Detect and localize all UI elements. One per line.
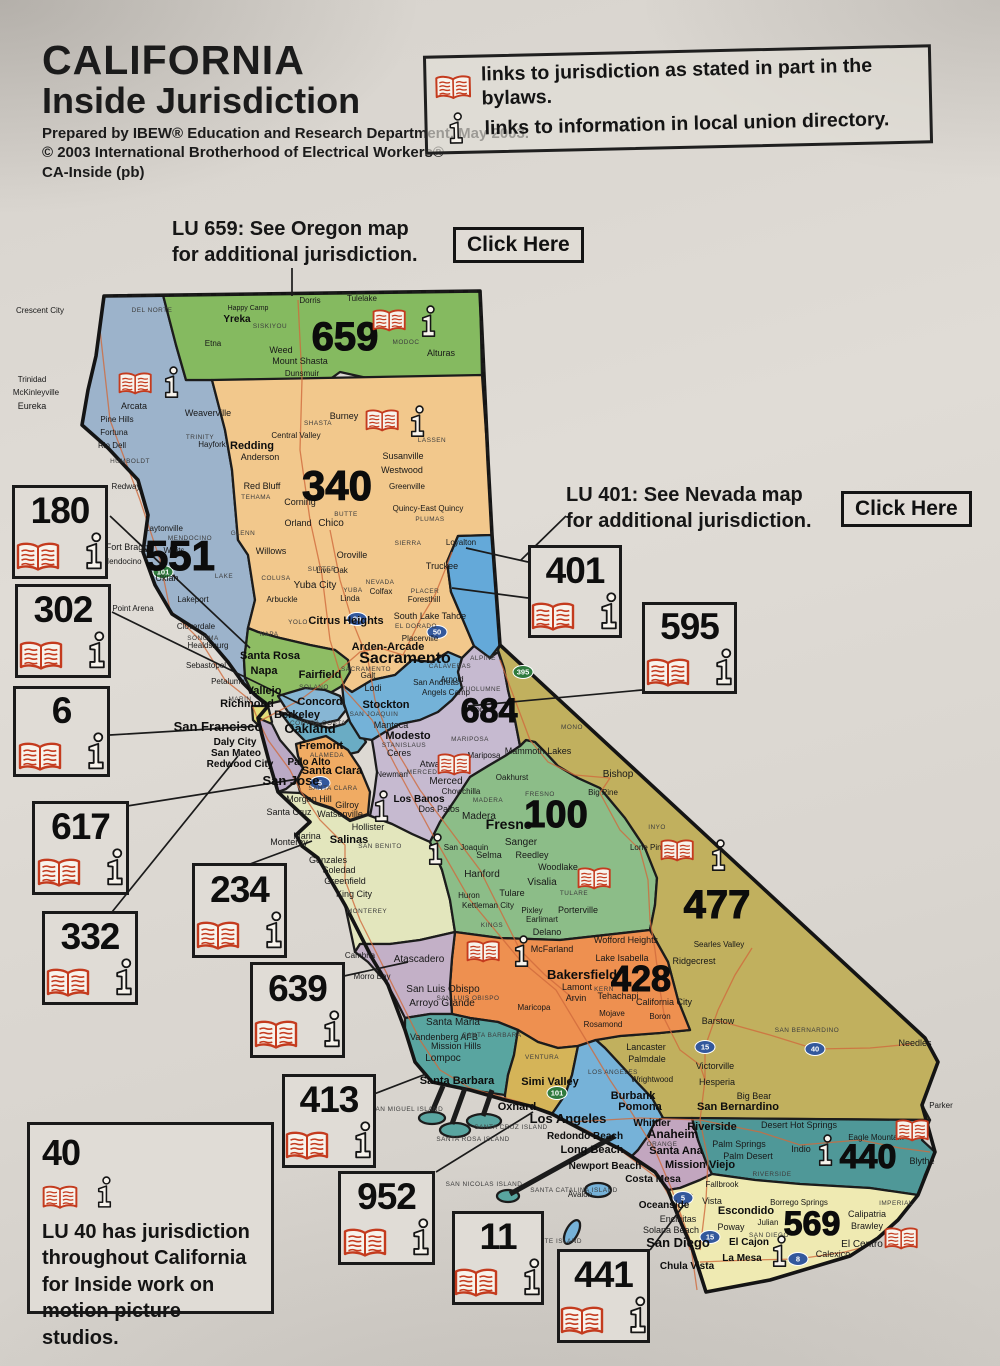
map-city-label: South Lake Tahoe xyxy=(394,611,466,621)
map-city-label: San Luis Obispo xyxy=(406,984,480,995)
map-county-label: MERCED xyxy=(407,769,438,776)
bylaws-book-icon[interactable] xyxy=(37,858,81,888)
map-city-label: San Francisco xyxy=(174,719,263,734)
map-city-label: Oakhurst xyxy=(496,773,529,782)
lu659-note-line2: for additional jurisdiction. xyxy=(172,242,418,268)
map-region-number-440: 440 xyxy=(840,1138,897,1176)
map-city-label: La Mesa xyxy=(722,1253,762,1264)
map-city-label: Napa xyxy=(251,665,279,677)
scanned-map-page: 1018050539515401011585 Crescent CityDEL … xyxy=(0,0,1000,1366)
legend-info-text: links to information in local union dire… xyxy=(484,107,889,141)
map-city-label: Lompoc xyxy=(425,1053,461,1064)
bylaws-book-icon[interactable] xyxy=(285,1131,329,1161)
map-city-label: Yreka xyxy=(223,314,251,325)
directory-info-icon[interactable] xyxy=(714,648,734,688)
map-city-label: Alturas xyxy=(427,348,456,358)
map-city-label: Redway xyxy=(112,482,141,491)
directory-info-icon[interactable] xyxy=(522,1258,542,1298)
map-city-label: Julian xyxy=(758,1218,779,1227)
directory-info-icon[interactable] xyxy=(264,911,284,951)
map-city-label: Etna xyxy=(205,339,222,348)
map-city-label: Red Bluff xyxy=(244,481,281,491)
map-city-label: Lancaster xyxy=(626,1042,666,1052)
map-city-label: Cloverdale xyxy=(177,622,216,631)
map-city-label: El Cajon xyxy=(729,1237,769,1248)
map-city-label: Fremont xyxy=(299,740,343,752)
map-county-label: SUTTER xyxy=(308,566,337,573)
san-miguel-island xyxy=(419,1112,445,1124)
bylaws-book-icon[interactable] xyxy=(343,1228,387,1258)
svg-text:40: 40 xyxy=(811,1045,819,1054)
callout-box-595: 595 xyxy=(642,602,737,694)
map-city-label: Pine Hills xyxy=(100,415,133,424)
map-city-label: Barstow xyxy=(702,1016,735,1026)
map-city-label: Willows xyxy=(256,546,287,556)
map-county-label: VENTURA xyxy=(525,1054,559,1061)
bylaws-book-icon[interactable] xyxy=(560,1306,604,1336)
map-city-label: Lodi xyxy=(364,683,381,693)
highway-shield-40: 40 xyxy=(805,1043,825,1056)
directory-info-icon[interactable] xyxy=(86,732,106,772)
local-union-number: 11 xyxy=(479,1218,516,1255)
local-union-number: 595 xyxy=(660,608,719,645)
map-city-label: Hollister xyxy=(352,822,385,832)
map-county-label: SIERRA xyxy=(395,540,422,547)
map-city-label: Poway xyxy=(717,1222,745,1232)
map-city-label: Desert Hot Springs xyxy=(761,1120,838,1130)
map-city-label: San Mateo xyxy=(211,748,261,759)
map-city-label: Greenfield xyxy=(324,876,366,886)
local-union-number: 401 xyxy=(546,552,605,589)
map-city-label: Arbuckle xyxy=(266,595,298,604)
map-county-label: SANTA CRUZ ISLAND xyxy=(474,1124,547,1131)
map-city-label: Arcata xyxy=(121,401,147,411)
local-union-number: 952 xyxy=(357,1178,416,1215)
map-city-label: San Joaquin xyxy=(444,843,488,852)
local-union-number: 302 xyxy=(34,591,93,628)
callout-box-234: 234 xyxy=(192,863,287,958)
local-union-number: 332 xyxy=(61,918,120,955)
local-union-number: 617 xyxy=(51,808,110,845)
map-city-label: Truckee xyxy=(426,561,458,571)
map-city-label: Watsonville xyxy=(317,809,363,819)
map-city-label: Searles Valley xyxy=(694,940,745,949)
map-county-label: INYO xyxy=(648,824,666,831)
map-county-label: YUBA xyxy=(343,587,363,594)
map-city-label: Placerville xyxy=(402,634,439,643)
map-county-label: TEHAMA xyxy=(241,494,271,501)
bylaws-book-icon[interactable] xyxy=(19,641,63,671)
map-city-label: Linda xyxy=(340,594,360,603)
bylaws-book-icon[interactable] xyxy=(646,658,690,688)
map-city-label: Hanford xyxy=(464,869,500,880)
map-city-label: Brawley xyxy=(851,1221,884,1231)
map-city-label: Modesto xyxy=(385,730,431,742)
map-city-label: Loyalton xyxy=(446,538,476,547)
map-county-label: MONO xyxy=(561,724,583,731)
map-region-number-659: 659 xyxy=(312,315,379,359)
map-city-label: King City xyxy=(336,889,373,899)
map-city-label: Dorris xyxy=(299,296,320,305)
map-city-label: Palmdale xyxy=(628,1054,666,1064)
map-county-label: SAN MIGUEL ISLAND xyxy=(371,1106,444,1113)
map-city-label: San Diego xyxy=(646,1235,710,1250)
lu40-jurisdiction-note: LU 40 has jurisdiction throughout Califo… xyxy=(42,1219,259,1351)
callout-box-332: 332 xyxy=(42,911,138,1005)
map-city-label: Wofford Heights xyxy=(594,935,659,945)
svg-text:395: 395 xyxy=(517,668,530,677)
map-city-label: Daly City xyxy=(214,737,257,748)
document-code: CA-Inside (pb) xyxy=(42,163,529,183)
map-city-label: Porterville xyxy=(558,905,598,915)
directory-info-icon[interactable] xyxy=(353,1121,373,1161)
map-city-label: Westwood xyxy=(381,465,423,475)
map-city-label: Victorville xyxy=(696,1061,734,1071)
map-county-label: PLACER xyxy=(411,588,440,595)
map-city-label: Woodlake xyxy=(538,862,578,872)
bylaws-book-icon[interactable] xyxy=(18,742,62,772)
lu401-note: LU 401: See Nevada map for additional ju… xyxy=(566,482,812,534)
map-region-number-569: 569 xyxy=(784,1205,841,1243)
map-city-label: Delano xyxy=(533,927,562,937)
map-bylaws-book-icon[interactable] xyxy=(886,1228,917,1248)
map-city-label: Huron xyxy=(458,891,480,900)
map-city-label: Ceres xyxy=(387,748,412,758)
svg-text:101: 101 xyxy=(551,1089,564,1098)
map-city-label: Merced xyxy=(429,776,462,787)
bylaws-book-icon[interactable] xyxy=(254,1020,298,1050)
map-city-label: Oakland xyxy=(284,721,335,736)
lu401-click-here-button[interactable]: Click Here xyxy=(841,491,972,527)
map-city-label: McKinleyville xyxy=(13,388,60,397)
map-county-label: MADERA xyxy=(473,797,504,804)
map-city-label: Richmond xyxy=(220,698,274,710)
map-city-label: Redding xyxy=(230,440,274,452)
map-city-label: Dunsmuir xyxy=(285,369,320,378)
map-city-label: Newman xyxy=(376,770,408,779)
map-city-label: Chico xyxy=(318,518,344,529)
map-city-label: Weed xyxy=(269,345,292,355)
map-city-label: San Bernardino xyxy=(697,1101,779,1113)
map-city-label: Redondo Beach xyxy=(547,1131,623,1142)
map-city-label: Calipatria xyxy=(848,1209,886,1219)
map-county-label: SAN NICOLAS ISLAND xyxy=(446,1181,523,1188)
local-union-number: 234 xyxy=(210,871,269,908)
map-county-label: SHASTA xyxy=(304,420,332,427)
map-city-label: Vallejo xyxy=(247,685,282,697)
map-city-label: Point Arena xyxy=(112,604,154,613)
local-union-number: 40 xyxy=(42,1135,80,1171)
map-region-number-684: 684 xyxy=(461,692,518,730)
map-city-label: Fairfield xyxy=(299,669,342,681)
map-city-label: Wrightwood xyxy=(631,1075,673,1084)
directory-info-icon[interactable] xyxy=(96,1176,113,1210)
map-city-label: Calexico xyxy=(816,1249,851,1259)
map-bylaws-book-icon[interactable] xyxy=(367,410,398,430)
map-city-label: Morro Bay xyxy=(354,972,391,981)
map-bylaws-book-icon[interactable] xyxy=(374,310,405,330)
map-region-number-100: 100 xyxy=(524,794,587,836)
map-city-label: Yuba City xyxy=(294,580,337,591)
lu401-note-line1: LU 401: See Nevada map xyxy=(566,482,812,508)
map-city-label: Bakersfield xyxy=(547,967,617,982)
map-city-label: Tulare xyxy=(499,888,524,898)
map-city-label: Mariposa xyxy=(468,751,501,760)
map-county-label: SISKIYOU xyxy=(253,323,287,330)
map-city-label: Kettleman City xyxy=(462,901,514,910)
map-city-label: Big Pine xyxy=(588,788,618,797)
map-region-number-428: 428 xyxy=(611,958,671,999)
map-city-label: Arvin xyxy=(566,993,587,1003)
map-city-label: Avalon xyxy=(568,1190,592,1199)
map-county-label: YOLO xyxy=(288,619,308,626)
map-city-label: Quincy-East Quincy xyxy=(393,504,464,513)
callout-box-302: 302 xyxy=(15,584,111,678)
callout-box-617: 617 xyxy=(32,801,129,895)
map-county-label: ALAMEDA xyxy=(310,752,344,759)
directory-info-icon[interactable] xyxy=(105,848,125,888)
callout-box-11: 11 xyxy=(452,1211,544,1305)
map-city-label: Pomona xyxy=(618,1101,662,1113)
map-city-label: Madera xyxy=(462,811,496,822)
map-city-label: Needles xyxy=(898,1038,932,1048)
callout-box-6: 6 xyxy=(13,686,110,777)
map-city-label: Boron xyxy=(649,1012,670,1021)
local-union-number: 6 xyxy=(52,692,72,729)
map-city-label: Lamont xyxy=(562,982,593,992)
map-city-label: Blythe xyxy=(909,1156,934,1166)
bylaws-book-icon xyxy=(434,75,472,101)
map-county-label: SOLANO xyxy=(299,684,329,691)
map-city-label: Mammoth Lakes xyxy=(505,746,572,756)
map-city-label: Tulelake xyxy=(347,294,377,303)
map-county-label: COLUSA xyxy=(261,575,291,582)
map-county-label: CALAVERAS xyxy=(429,663,471,670)
map-city-label: Newport Beach xyxy=(569,1161,642,1172)
map-bylaws-book-icon[interactable] xyxy=(439,754,470,774)
map-city-label: Gonzales xyxy=(309,855,348,865)
map-city-label: Santa Rosa xyxy=(240,650,301,662)
map-city-label: Manteca xyxy=(374,720,409,730)
map-city-label: Oroville xyxy=(337,550,368,560)
map-bylaws-book-icon[interactable] xyxy=(468,941,499,961)
local-union-number: 180 xyxy=(31,492,90,529)
directory-info-icon xyxy=(435,111,476,146)
map-county-label: SANTA ROSA ISLAND xyxy=(436,1136,509,1143)
map-city-label: Hayfork xyxy=(198,440,227,449)
map-city-label: Crescent City xyxy=(16,306,64,315)
lu659-click-here-button[interactable]: Click Here xyxy=(453,227,584,263)
bylaws-book-icon[interactable] xyxy=(196,921,240,951)
map-city-label: Pixley xyxy=(521,906,542,915)
map-county-label: DEL NORTE xyxy=(132,307,173,314)
map-bylaws-book-icon[interactable] xyxy=(662,840,693,860)
map-city-label: Indio xyxy=(791,1144,811,1154)
directory-info-icon[interactable] xyxy=(84,532,104,572)
map-city-label: Solana Beach xyxy=(643,1225,699,1235)
bylaws-book-icon[interactable] xyxy=(42,1185,78,1210)
directory-info-icon[interactable] xyxy=(628,1296,648,1336)
map-city-label: Soledad xyxy=(322,865,355,875)
map-city-label: Healdsburg xyxy=(188,641,229,650)
local-union-number: 639 xyxy=(268,970,327,1007)
map-county-label: SANTA BARBARA xyxy=(462,1032,522,1039)
lu659-note: LU 659: See Oregon map for additional ju… xyxy=(172,216,418,268)
map-city-label: Fort Bragg xyxy=(106,542,149,552)
directory-info-icon[interactable] xyxy=(114,958,134,998)
map-county-label: NEVADA xyxy=(366,579,395,586)
callout-box-40: 40 LU 40 has jurisdiction throughout Cal… xyxy=(27,1122,274,1314)
map-city-label: Mendocino xyxy=(102,557,142,566)
map-county-label: SAN BERNARDINO xyxy=(775,1027,840,1034)
map-city-label: Sanger xyxy=(505,837,538,848)
highway-shield-8: 8 xyxy=(788,1253,808,1266)
lu401-note-line2: for additional jurisdiction. xyxy=(566,508,812,534)
map-city-label: Burney xyxy=(330,411,359,421)
map-county-label: LASSEN xyxy=(418,437,446,444)
map-city-label: Encinitas xyxy=(660,1214,697,1224)
highway-shield-395: 395 xyxy=(513,666,533,679)
map-city-label: Santa Barbara xyxy=(420,1075,495,1087)
map-city-label: Hesperia xyxy=(699,1077,735,1087)
map-city-label: Santa Cruz xyxy=(266,807,312,817)
map-city-label: Redwood City xyxy=(207,759,274,770)
map-city-label: McFarland xyxy=(531,944,574,954)
map-city-label: Oceanside xyxy=(639,1200,690,1211)
map-city-label: Stockton xyxy=(362,699,409,711)
map-county-label: GLENN xyxy=(231,530,256,537)
map-county-label: LAKE xyxy=(215,573,233,580)
bylaws-book-icon[interactable] xyxy=(16,542,60,572)
map-city-label: Concord xyxy=(297,696,342,708)
map-city-label: Chowchilla xyxy=(442,787,481,796)
callout-box-180: 180 xyxy=(12,485,108,579)
map-county-label: RIVERSIDE xyxy=(753,1171,792,1178)
map-county-label: PLUMAS xyxy=(415,516,444,523)
map-city-label: Morgan Hill xyxy=(286,794,332,804)
map-city-label: Fortuna xyxy=(100,428,128,437)
callout-box-441: 441 xyxy=(557,1249,650,1343)
legend-book-text: links to jurisdiction as stated in part … xyxy=(481,52,921,111)
map-city-label: Maricopa xyxy=(518,1003,551,1012)
legend-box: links to jurisdiction as stated in part … xyxy=(423,44,933,154)
map-city-label: Sebastopol xyxy=(186,661,226,670)
map-county-label: IMPERIAL xyxy=(879,1200,913,1207)
map-city-label: Monterey xyxy=(270,837,308,847)
local-union-number: 413 xyxy=(300,1081,359,1118)
map-city-label: Happy Camp xyxy=(228,305,269,312)
map-county-label: MONTEREY xyxy=(347,908,387,915)
callout-box-952: 952 xyxy=(338,1171,435,1265)
map-city-label: Bishop xyxy=(603,769,634,780)
highway-shield-15: 15 xyxy=(695,1041,715,1054)
map-city-label: Earlimart xyxy=(526,915,559,924)
map-city-label: Mojave xyxy=(599,1009,625,1018)
map-city-label: Foresthill xyxy=(408,595,441,604)
map-county-label: NAPA xyxy=(260,631,279,638)
directory-info-icon[interactable] xyxy=(322,1010,342,1050)
map-city-label: Reedley xyxy=(515,850,549,860)
map-county-label: HUMBOLDT xyxy=(110,458,150,465)
map-county-label: KINGS xyxy=(481,922,503,929)
map-city-label: Greenville xyxy=(389,482,426,491)
map-bylaws-book-icon[interactable] xyxy=(897,1120,928,1140)
map-county-label: SAN JOAQUIN xyxy=(350,711,399,718)
map-city-label: Simi Valley xyxy=(521,1076,579,1088)
directory-info-icon[interactable] xyxy=(599,592,619,632)
map-city-label: Escondido xyxy=(718,1205,775,1217)
map-bylaws-book-icon[interactable] xyxy=(120,373,151,393)
map-city-label: Eureka xyxy=(18,401,47,411)
map-city-label: Riverside xyxy=(687,1121,737,1133)
map-city-label: Dos Palos xyxy=(418,804,460,814)
map-region-number-340: 340 xyxy=(302,462,372,509)
map-city-label: Santa Maria xyxy=(426,1017,480,1028)
map-city-label: Galt xyxy=(361,671,376,680)
map-county-label: EL DORADO xyxy=(395,623,437,630)
map-city-label: Trinidad xyxy=(18,375,47,384)
directory-info-icon[interactable] xyxy=(411,1218,431,1258)
map-city-label: Arnold xyxy=(440,675,463,684)
map-city-label: Chula Vista xyxy=(660,1261,715,1272)
bylaws-book-icon[interactable] xyxy=(46,968,90,998)
map-city-label: Parker xyxy=(929,1101,953,1110)
map-county-label: SANTA CLARA xyxy=(308,785,357,792)
map-city-label: Cambria xyxy=(345,951,376,960)
map-city-label: Central Valley xyxy=(271,431,320,440)
map-city-label: Costa Mesa xyxy=(625,1174,681,1185)
map-city-label: Arroyo Grande xyxy=(409,998,475,1009)
map-city-label: Weaverville xyxy=(185,408,231,418)
santa-rosa-island xyxy=(440,1123,470,1137)
map-region-number-477: 477 xyxy=(684,883,751,927)
map-city-label: Anderson xyxy=(241,452,280,462)
local-union-number: 441 xyxy=(574,1256,633,1293)
callout-box-401: 401 xyxy=(528,545,622,638)
svg-text:8: 8 xyxy=(796,1255,800,1264)
map-city-label: Susanville xyxy=(382,451,423,461)
bylaws-book-icon[interactable] xyxy=(454,1268,498,1298)
map-city-label: Palm Desert xyxy=(723,1151,773,1161)
map-city-label: Visalia xyxy=(527,877,557,888)
map-bylaws-book-icon[interactable] xyxy=(579,868,610,888)
bylaws-book-icon[interactable] xyxy=(531,602,575,632)
svg-text:15: 15 xyxy=(701,1043,709,1052)
directory-info-icon[interactable] xyxy=(87,631,107,671)
map-city-label: Salinas xyxy=(330,834,369,846)
map-city-label: Big Bear xyxy=(737,1091,772,1101)
map-county-label: BUTTE xyxy=(334,511,357,518)
map-city-label: Palm Springs xyxy=(712,1139,766,1149)
callout-box-639: 639 xyxy=(250,962,345,1058)
map-city-label: Citrus Heights xyxy=(308,615,383,627)
map-county-label: TULARE xyxy=(560,890,588,897)
map-city-label: Long Beach xyxy=(561,1144,624,1156)
map-city-label: Orland xyxy=(284,518,311,528)
map-county-label: ALPINE xyxy=(470,655,496,662)
map-county-label: MODOC xyxy=(393,339,420,346)
map-city-label: Fallbrook xyxy=(706,1180,740,1189)
map-county-label: ORANGE xyxy=(647,1141,678,1148)
map-city-label: Atascadero xyxy=(394,954,445,965)
lu659-note-line1: LU 659: See Oregon map xyxy=(172,216,418,242)
map-city-label: Mission Hills xyxy=(431,1041,482,1051)
map-city-label: Petaluma xyxy=(211,677,245,686)
map-county-label: MARIPOSA xyxy=(451,736,489,743)
map-city-label: Ridgecrest xyxy=(672,956,716,966)
map-region-number-551: 551 xyxy=(145,532,215,579)
map-city-label: Rosamond xyxy=(584,1020,623,1029)
